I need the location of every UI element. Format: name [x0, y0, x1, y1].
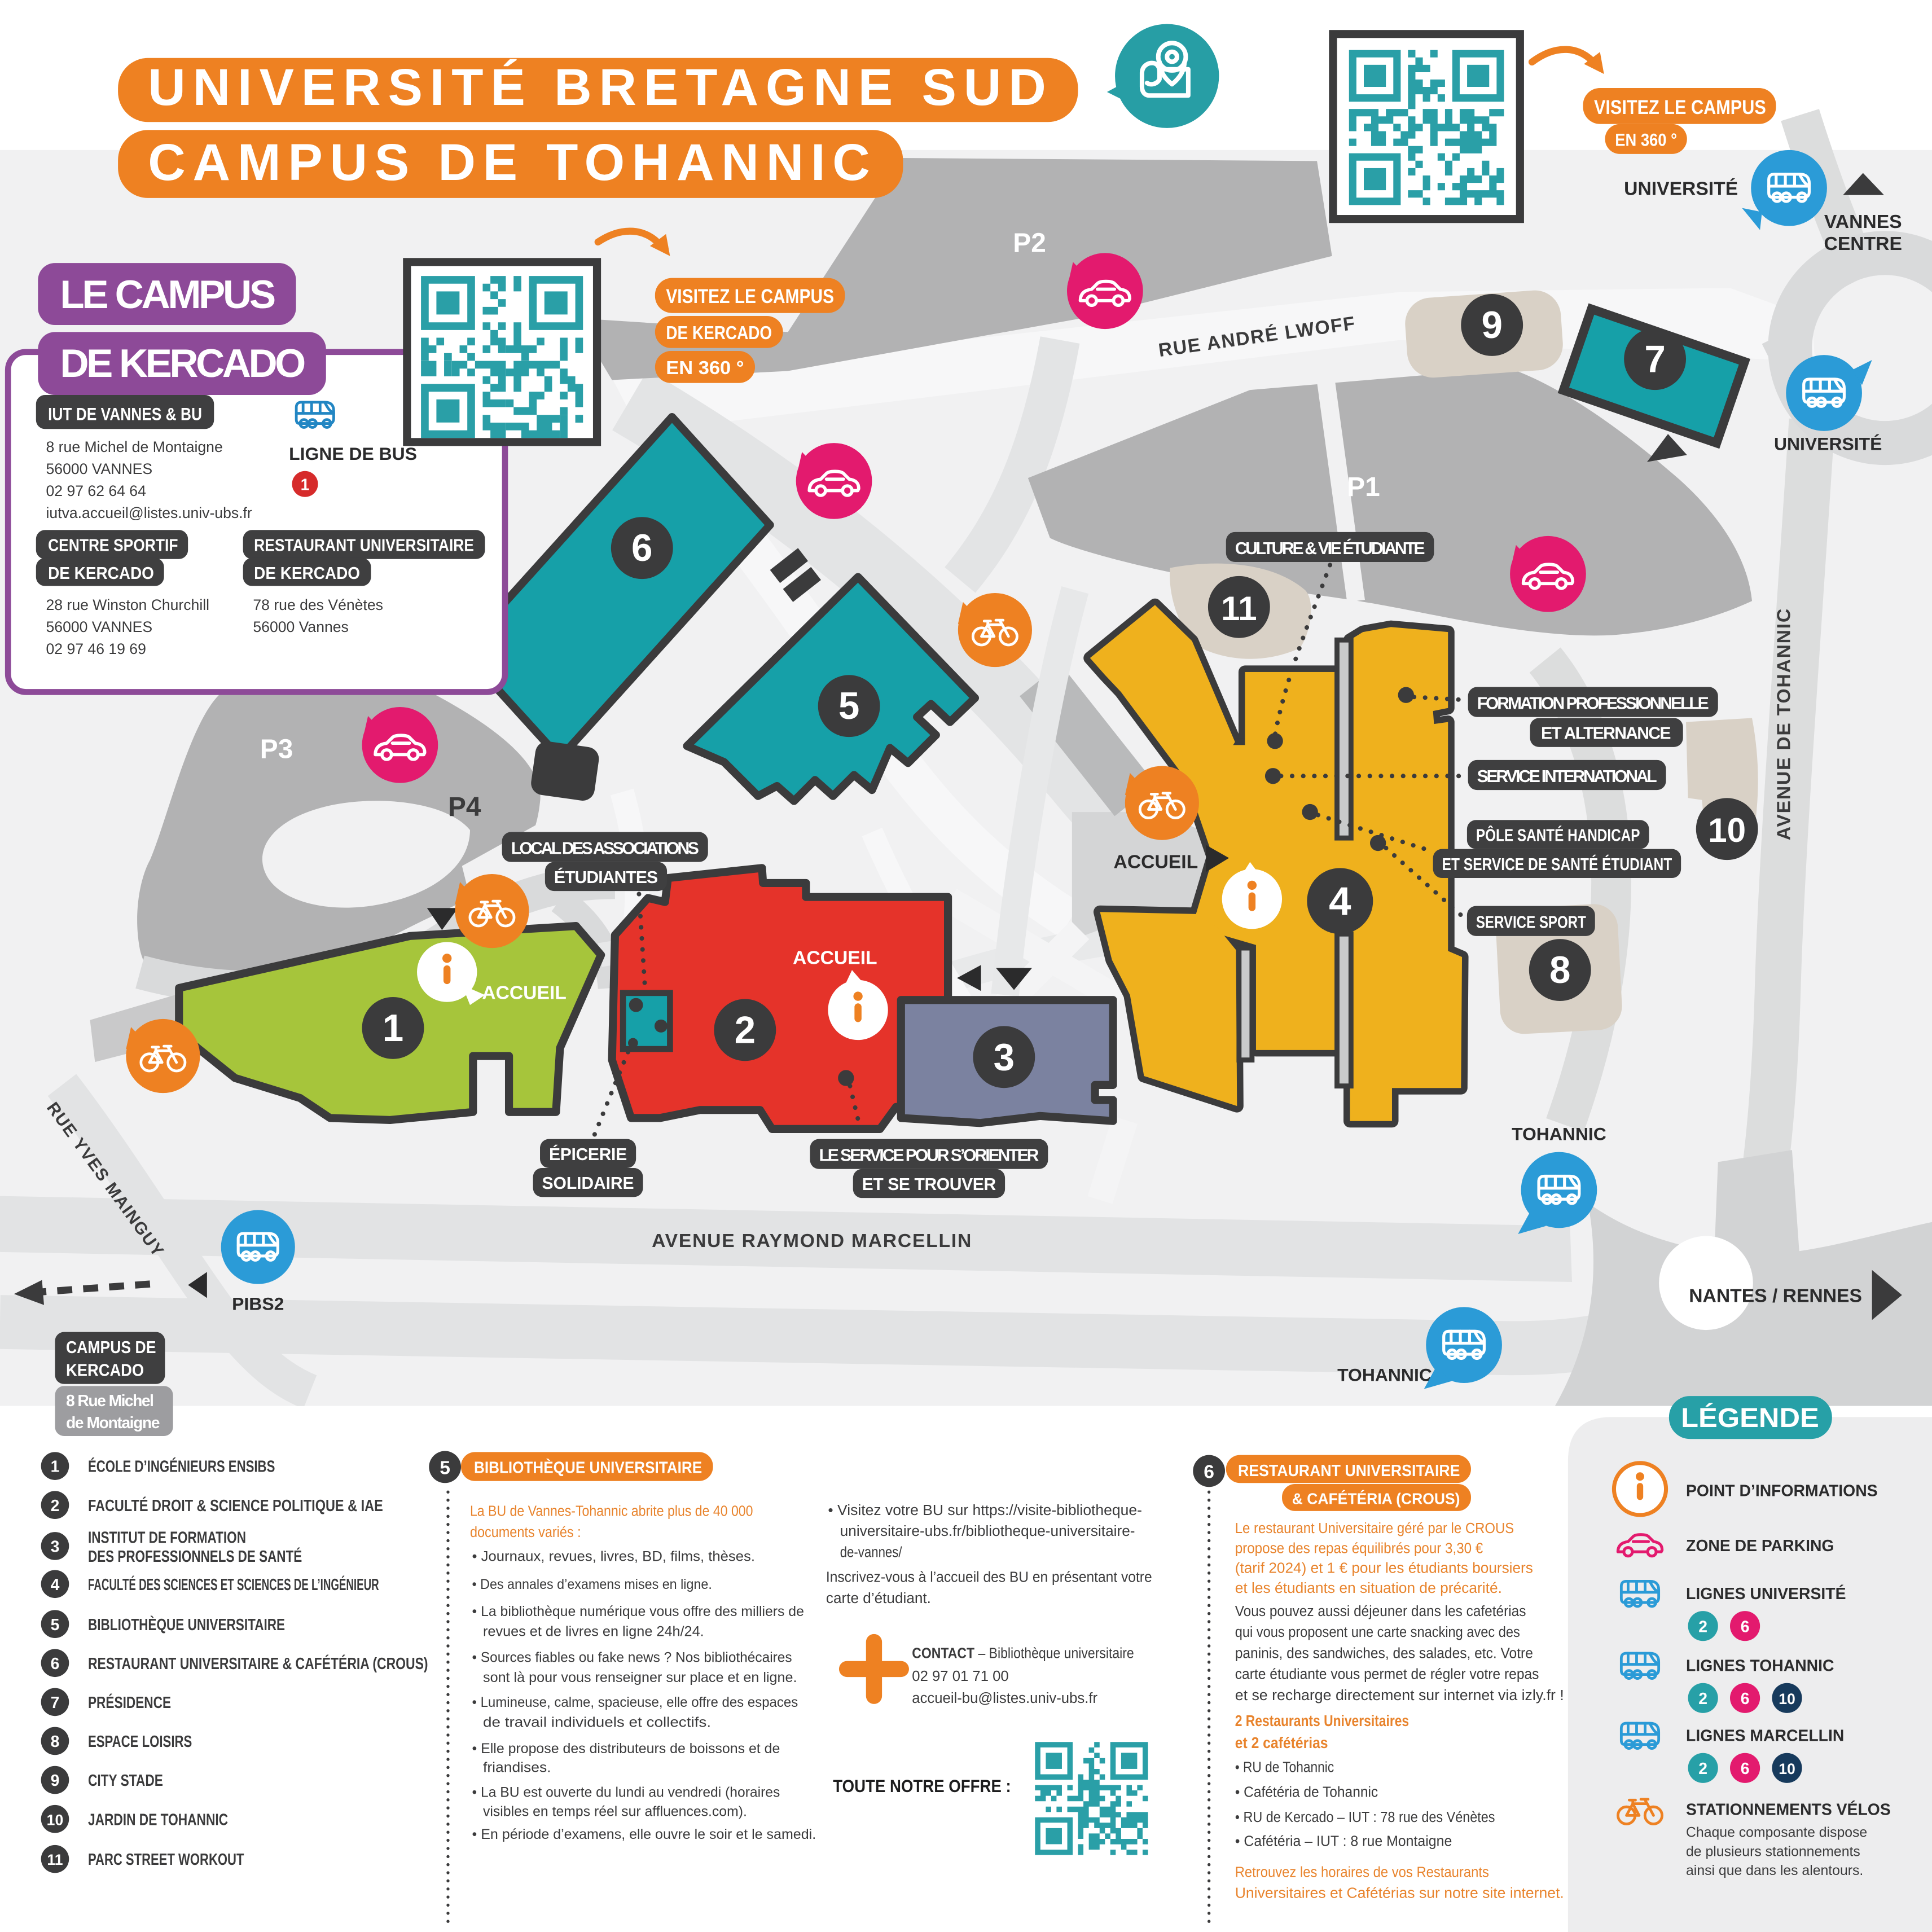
svg-text:LOCAL DES ASSOCIATIONS: LOCAL DES ASSOCIATIONS: [511, 840, 699, 858]
svg-text:1: 1: [383, 1007, 403, 1050]
svg-text:6: 6: [1204, 1461, 1214, 1482]
svg-text:RESTAURANT UNIVERSITAIRE & CAF: RESTAURANT UNIVERSITAIRE & CAFÉTÉRIA (CR…: [88, 1655, 428, 1673]
svg-text:P1: P1: [1347, 472, 1380, 502]
svg-text:TOUTE NOTRE OFFRE :: TOUTE NOTRE OFFRE :: [833, 1776, 1011, 1796]
svg-text:6: 6: [1741, 1690, 1750, 1708]
svg-text:universitaire-ubs.fr/bibliothe: universitaire-ubs.fr/bibliotheque-univer…: [840, 1523, 1135, 1539]
svg-text:P4: P4: [448, 792, 481, 822]
svg-text:6: 6: [1741, 1760, 1750, 1778]
svg-text:Universitaires et Cafétérias s: Universitaires et Cafétérias sur notre s…: [1235, 1886, 1564, 1902]
svg-text:& CAFÉTÉRIA (CROUS): & CAFÉTÉRIA (CROUS): [1292, 1490, 1460, 1507]
svg-text:5: 5: [51, 1616, 60, 1634]
svg-text:CONTACT – Bibliothèque univers: CONTACT – Bibliothèque universitaire: [912, 1645, 1134, 1661]
svg-text:LE CAMPUS: LE CAMPUS: [60, 273, 276, 317]
svg-text:2: 2: [735, 1009, 756, 1051]
svg-text:ainsi que dans les alentours.: ainsi que dans les alentours.: [1686, 1863, 1863, 1878]
svg-text:AVENUE RAYMOND MARCELLIN: AVENUE RAYMOND MARCELLIN: [652, 1231, 972, 1252]
svg-text:2: 2: [1698, 1690, 1707, 1708]
svg-text:NANTES / RENNES: NANTES / RENNES: [1689, 1285, 1862, 1306]
svg-text:INSTITUT DE FORMATION: INSTITUT DE FORMATION: [88, 1529, 246, 1547]
svg-text:SERVICE INTERNATIONAL: SERVICE INTERNATIONAL: [1477, 767, 1657, 786]
svg-text:FORMATION PROFESSIONNELLE: FORMATION PROFESSIONNELLE: [1477, 695, 1709, 713]
svg-text:ET SE TROUVER: ET SE TROUVER: [862, 1175, 996, 1194]
svg-text:UNIVERSITÉ: UNIVERSITÉ: [1624, 178, 1738, 200]
svg-text:iutva.accueil@listes.univ-ubs.: iutva.accueil@listes.univ-ubs.fr: [46, 504, 252, 521]
svg-text:PRÉSIDENCE: PRÉSIDENCE: [88, 1694, 171, 1712]
svg-text:ZONE DE PARKING: ZONE DE PARKING: [1686, 1537, 1834, 1555]
svg-text:3: 3: [994, 1036, 1015, 1078]
svg-text:Le restaurant Universitaire gé: Le restaurant Universitaire géré par le …: [1235, 1521, 1514, 1536]
svg-text:8: 8: [1549, 949, 1570, 991]
svg-text:9: 9: [51, 1772, 60, 1790]
svg-text:et les étudiants en situation: et les étudiants en situation de précari…: [1235, 1580, 1502, 1596]
svg-text:BIBLIOTHÈQUE UNIVERSITAIRE: BIBLIOTHÈQUE UNIVERSITAIRE: [88, 1616, 285, 1634]
svg-text:2: 2: [1698, 1760, 1707, 1778]
svg-text:10: 10: [47, 1811, 64, 1828]
svg-text:• La bibliothèque numérique vo: • La bibliothèque numérique vous offre d…: [472, 1604, 804, 1619]
svg-text:RESTAURANT UNIVERSITAIRE: RESTAURANT UNIVERSITAIRE: [254, 537, 474, 555]
svg-text:• Lumineuse, calme, spacieuse,: • Lumineuse, calme, spacieuse, elle offr…: [472, 1695, 798, 1710]
svg-text:2: 2: [1698, 1618, 1707, 1636]
svg-text:DE KERCADO: DE KERCADO: [48, 564, 154, 583]
svg-text:• Cafétéria – IUT : 8 rue Mont: • Cafétéria – IUT : 8 rue Montaigne: [1235, 1834, 1452, 1850]
svg-text:VISITEZ LE CAMPUS: VISITEZ LE CAMPUS: [1594, 96, 1766, 118]
svg-text:ÉTUDIANTES: ÉTUDIANTES: [554, 868, 658, 887]
svg-text:• En période d’examens, elle o: • En période d’examens, elle ouvre le so…: [472, 1827, 816, 1842]
svg-text:ÉPICERIE: ÉPICERIE: [549, 1145, 627, 1164]
svg-text:• Des annales d’examens mises: • Des annales d’examens mises en ligne.: [472, 1577, 712, 1592]
svg-text:56000 Vannes: 56000 Vannes: [253, 618, 348, 635]
svg-text:(tarif 2024) et 1 € pour les é: (tarif 2024) et 1 € pour les étudiants b…: [1235, 1561, 1533, 1577]
svg-text:2 Restaurants Universitaires: 2 Restaurants Universitaires: [1235, 1712, 1409, 1729]
svg-text:7: 7: [51, 1694, 60, 1712]
svg-text:et 2 cafétérias: et 2 cafétérias: [1235, 1734, 1328, 1751]
svg-text:LIGNES TOHANNIC: LIGNES TOHANNIC: [1686, 1657, 1834, 1675]
svg-text:carte étudiante vous permet de: carte étudiante vous permet de régler vo…: [1235, 1667, 1539, 1683]
svg-text:2: 2: [51, 1497, 60, 1515]
svg-text:JARDIN DE TOHANNIC: JARDIN DE TOHANNIC: [88, 1811, 228, 1829]
svg-text:9: 9: [1481, 304, 1502, 346]
svg-text:visibles en temps réel sur aff: visibles en temps réel sur affluences.co…: [483, 1804, 747, 1819]
svg-text:1: 1: [51, 1458, 60, 1476]
svg-text:STATIONNEMENTS VÉLOS: STATIONNEMENTS VÉLOS: [1686, 1801, 1891, 1819]
svg-text:P2: P2: [1013, 229, 1046, 258]
svg-text:02 97 62 64 64: 02 97 62 64 64: [46, 482, 146, 499]
svg-text:DE KERCADO: DE KERCADO: [666, 323, 772, 344]
svg-text:SOLIDAIRE: SOLIDAIRE: [542, 1174, 634, 1193]
svg-text:accueil-bu@listes.univ-ubs.fr: accueil-bu@listes.univ-ubs.fr: [912, 1691, 1097, 1706]
svg-text:• RU de Kercado – IUT : 78 rue: • RU de Kercado – IUT : 78 rue des Vénèt…: [1235, 1810, 1495, 1825]
svg-text:8 Rue Michel: 8 Rue Michel: [66, 1392, 154, 1410]
svg-text:CULTURE & VIE ÉTUDIANTE: CULTURE & VIE ÉTUDIANTE: [1235, 539, 1425, 558]
svg-text:PIBS2: PIBS2: [232, 1294, 284, 1314]
svg-text:revues et de livres en ligne 2: revues et de livres en ligne 24h/24.: [483, 1624, 704, 1639]
svg-text:6: 6: [1741, 1618, 1750, 1636]
svg-text:7: 7: [1644, 338, 1665, 380]
svg-text:8 rue Michel de Montaigne: 8 rue Michel de Montaigne: [46, 438, 223, 455]
svg-text:RESTAURANT UNIVERSITAIRE: RESTAURANT UNIVERSITAIRE: [1238, 1462, 1460, 1480]
svg-text:5: 5: [440, 1457, 450, 1478]
svg-text:CITY STADE: CITY STADE: [88, 1772, 163, 1790]
svg-text:10: 10: [1779, 1760, 1795, 1777]
svg-text:POINT D’INFORMATIONS: POINT D’INFORMATIONS: [1686, 1482, 1878, 1500]
svg-text:documents variés :: documents variés :: [470, 1525, 581, 1540]
svg-text:3: 3: [51, 1538, 60, 1556]
svg-text:BIBLIOTHÈQUE UNIVERSITAIRE: BIBLIOTHÈQUE UNIVERSITAIRE: [474, 1459, 702, 1477]
svg-text:8: 8: [51, 1733, 60, 1751]
svg-text:et se recharge directement sur: et se recharge directement sur internet …: [1235, 1688, 1564, 1703]
svg-text:CENTRE: CENTRE: [1824, 234, 1902, 254]
svg-text:carte d’étudiant.: carte d’étudiant.: [826, 1591, 931, 1606]
svg-text:4: 4: [51, 1576, 60, 1594]
svg-text:KERCADO: KERCADO: [66, 1362, 144, 1380]
svg-text:UNIVERSITÉ: UNIVERSITÉ: [1774, 434, 1882, 454]
svg-text:VISITEZ LE CAMPUS: VISITEZ LE CAMPUS: [666, 285, 834, 308]
svg-text:ESPACE LOISIRS: ESPACE LOISIRS: [88, 1733, 192, 1751]
svg-text:de travail individuels et coll: de travail individuels et collectifs.: [483, 1715, 711, 1731]
svg-text:• Cafétéria de Tohannic: • Cafétéria de Tohannic: [1235, 1785, 1378, 1801]
svg-text:28 rue Winston Churchill: 28 rue Winston Churchill: [46, 596, 210, 613]
svg-text:DES PROFESSIONNELS DE SANTÉ: DES PROFESSIONNELS DE SANTÉ: [88, 1548, 302, 1566]
svg-text:LIGNES MARCELLIN: LIGNES MARCELLIN: [1686, 1727, 1844, 1745]
svg-text:SERVICE SPORT: SERVICE SPORT: [1476, 914, 1586, 932]
svg-text:4: 4: [1329, 880, 1351, 924]
svg-text:11: 11: [47, 1851, 63, 1868]
svg-text:IUT DE VANNES & BU: IUT DE VANNES & BU: [48, 403, 202, 424]
svg-text:friandises.: friandises.: [483, 1760, 551, 1775]
svg-text:• La BU est ouverte du lundi a: • La BU est ouverte du lundi au vendredi…: [472, 1785, 780, 1801]
svg-text:ACCUEIL: ACCUEIL: [482, 982, 567, 1003]
svg-text:de Montaigne: de Montaigne: [66, 1414, 160, 1432]
svg-text:TOHANNIC: TOHANNIC: [1512, 1123, 1606, 1144]
svg-text:PÔLE SANTÉ HANDICAP: PÔLE SANTÉ HANDICAP: [1476, 826, 1640, 845]
svg-text:AVENUE DE TOHANNIC: AVENUE DE TOHANNIC: [1773, 608, 1794, 840]
svg-text:ÉCOLE D’INGÉNIEURS ENSIBS: ÉCOLE D’INGÉNIEURS ENSIBS: [88, 1458, 275, 1476]
svg-text:TOHANNIC: TOHANNIC: [1337, 1364, 1432, 1385]
svg-text:10: 10: [1779, 1691, 1795, 1707]
svg-text:EN 360 °: EN 360 °: [1615, 130, 1677, 150]
svg-text:P3: P3: [260, 734, 293, 764]
svg-text:LIGNES UNIVERSITÉ: LIGNES UNIVERSITÉ: [1686, 1585, 1846, 1603]
svg-text:ACCUEIL: ACCUEIL: [793, 947, 877, 968]
svg-text:LÉGENDE: LÉGENDE: [1681, 1403, 1819, 1433]
svg-text:5: 5: [838, 685, 859, 727]
svg-text:propose des repas équilibrés p: propose des repas équilibrés pour 3,30 €: [1235, 1540, 1483, 1556]
svg-text:La BU de Vannes-Tohannic abrit: La BU de Vannes-Tohannic abrite plus de …: [470, 1504, 753, 1520]
svg-text:FACULTÉ DES SCIENCES ET SCIENC: FACULTÉ DES SCIENCES ET SCIENCES DE L’IN…: [88, 1576, 379, 1594]
svg-text:78 rue des Vénètes: 78 rue des Vénètes: [253, 596, 383, 613]
svg-text:ET SERVICE DE SANTÉ ÉTUDIANT: ET SERVICE DE SANTÉ ÉTUDIANT: [1442, 855, 1672, 874]
svg-text:• Sources fiables ou fake news: • Sources fiables ou fake news ? Nos bib…: [472, 1650, 792, 1665]
svg-text:PARC STREET WORKOUT: PARC STREET WORKOUT: [88, 1851, 244, 1869]
svg-text:6: 6: [51, 1655, 60, 1673]
svg-text:de-vannes/: de-vannes/: [840, 1544, 903, 1560]
svg-text:• Elle propose des distributeu: • Elle propose des distributeurs de bois…: [472, 1741, 780, 1757]
svg-text:de plusieurs stationnements: de plusieurs stationnements: [1686, 1844, 1860, 1859]
svg-text:sont là pour vous renseigner s: sont là pour vous renseigner sur place e…: [483, 1670, 797, 1685]
svg-text:CENTRE SPORTIF: CENTRE SPORTIF: [48, 537, 178, 555]
svg-text:6: 6: [631, 527, 652, 569]
svg-text:FACULTÉ DROIT & SCIENCE POLITI: FACULTÉ DROIT & SCIENCE POLITIQUE & IAE: [88, 1497, 383, 1515]
svg-text:• Visitez votre BU sur https:/: • Visitez votre BU sur https://visite-bi…: [828, 1503, 1141, 1518]
svg-text:02 97 46 19 69: 02 97 46 19 69: [46, 640, 146, 657]
svg-text:LE SERVICE POUR S’ORIENTER: LE SERVICE POUR S’ORIENTER: [819, 1147, 1039, 1165]
svg-text:CAMPUS DE: CAMPUS DE: [66, 1338, 156, 1357]
svg-text:Chaque composante dispose: Chaque composante dispose: [1686, 1825, 1867, 1841]
svg-text:EN 360 °: EN 360 °: [666, 358, 744, 379]
svg-text:ACCUEIL: ACCUEIL: [1114, 851, 1198, 872]
svg-text:paninis, des sandwiches, des s: paninis, des sandwiches, des salades, et…: [1235, 1645, 1533, 1661]
svg-text:10: 10: [1708, 811, 1746, 849]
svg-text:DE KERCADO: DE KERCADO: [254, 564, 360, 583]
svg-text:VANNES: VANNES: [1824, 212, 1902, 232]
svg-text:02 97 01 71 00: 02 97 01 71 00: [912, 1668, 1008, 1684]
svg-text:11: 11: [1221, 589, 1257, 627]
svg-text:56000 VANNES: 56000 VANNES: [46, 618, 153, 635]
svg-text:LIGNE DE BUS: LIGNE DE BUS: [289, 444, 417, 464]
svg-text:qui vous proposent une carte s: qui vous proposent une carte snacking av…: [1235, 1624, 1520, 1640]
svg-text:56000 VANNES: 56000 VANNES: [46, 460, 153, 477]
svg-text:Retrouvez les horaires de vos: Retrouvez les horaires de vos Restaurant…: [1235, 1865, 1489, 1881]
svg-text:• RU de Tohannic: • RU de Tohannic: [1235, 1759, 1334, 1775]
svg-text:DE KERCADO: DE KERCADO: [60, 341, 306, 386]
svg-text:Vous pouvez aussi déjeuner da: Vous pouvez aussi déjeuner dans les cafe…: [1235, 1604, 1526, 1619]
svg-text:ET ALTERNANCE: ET ALTERNANCE: [1541, 725, 1671, 743]
svg-text:1: 1: [301, 476, 310, 494]
svg-text:Inscrivez-vous à l’accueil des: Inscrivez-vous à l’accueil des BU en pré…: [826, 1570, 1152, 1586]
svg-text:• Journaux, revues, livres, BD: • Journaux, revues, livres, BD, films, t…: [472, 1549, 756, 1564]
